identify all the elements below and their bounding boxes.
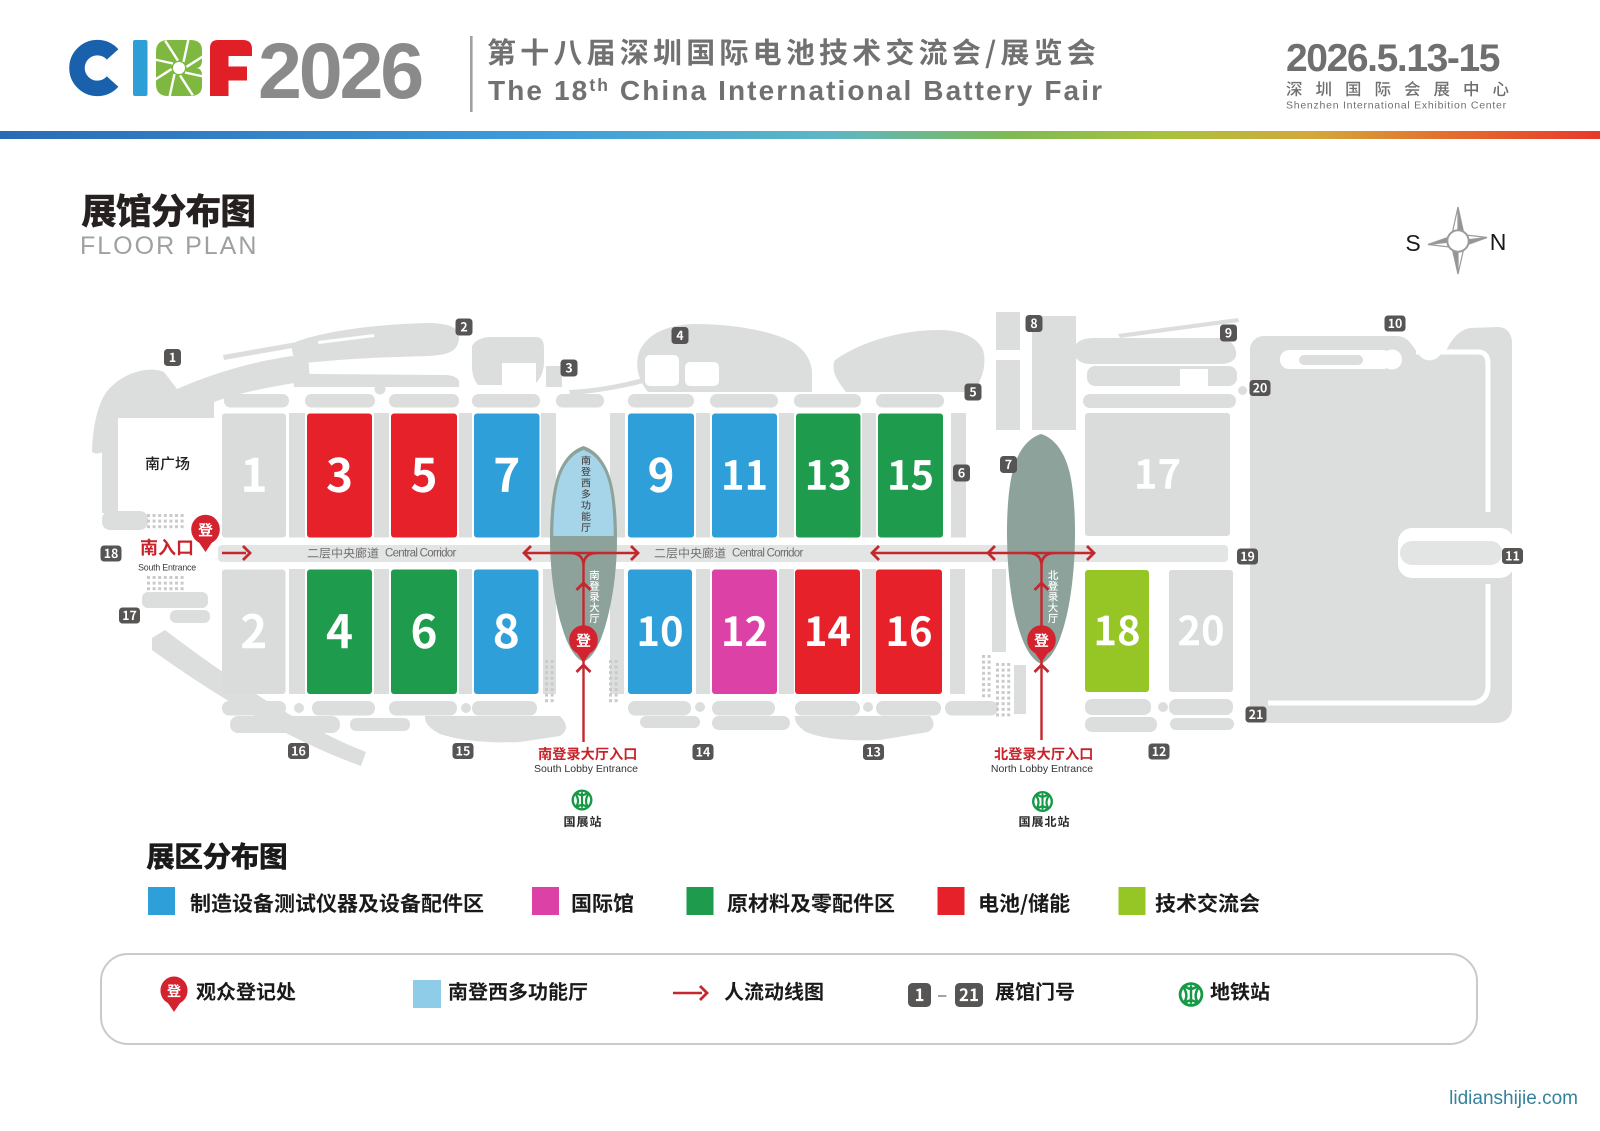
svg-text:–: – — [938, 987, 947, 1004]
svg-text:South Lobby Entrance: South Lobby Entrance — [534, 763, 638, 775]
svg-text:N: N — [1490, 229, 1507, 255]
svg-text:S: S — [1405, 230, 1420, 256]
svg-text:lidianshijie.com: lidianshijie.com — [1449, 1088, 1578, 1109]
svg-text:The 18th China International B: The 18th China International Battery Fai… — [488, 75, 1104, 106]
svg-text:Central Corridor: Central Corridor — [385, 548, 456, 560]
svg-text:North Lobby Entrance: North Lobby Entrance — [991, 763, 1093, 775]
svg-text:South Entrance: South Entrance — [138, 563, 196, 573]
svg-text:2026: 2026 — [258, 26, 422, 115]
svg-text:2026.5.13-15: 2026.5.13-15 — [1286, 37, 1500, 80]
svg-text:Central Corridor: Central Corridor — [732, 548, 803, 560]
svg-text:Shenzhen International Exhibit: Shenzhen International Exhibition Center — [1286, 100, 1507, 112]
svg-text:FLOOR PLAN: FLOOR PLAN — [80, 232, 258, 260]
